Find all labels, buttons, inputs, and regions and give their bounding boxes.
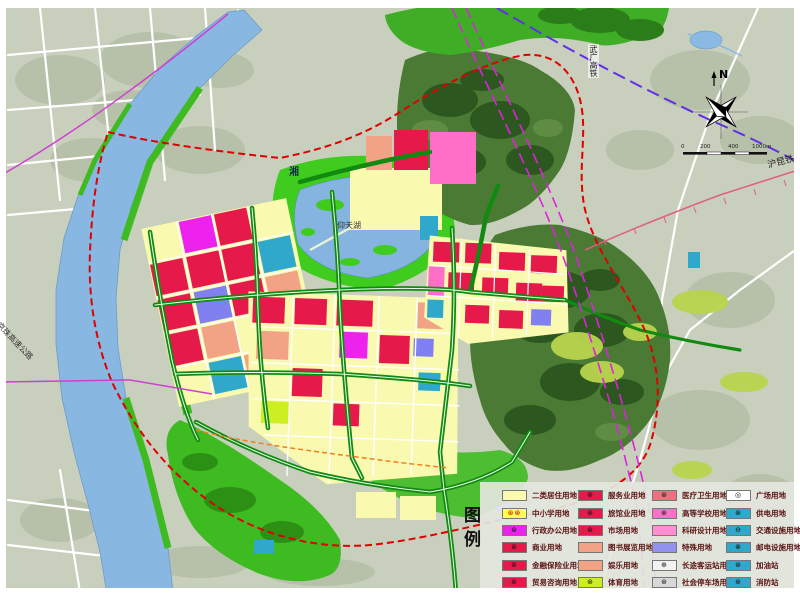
legend-item: ⊛商业用地 [502, 539, 585, 556]
legend-swatch: ⊗ [726, 542, 751, 553]
legend-item: 二类居住用地 [502, 487, 585, 504]
legend-swatch: ⊛ [578, 490, 603, 501]
legend-item-label: 金融保险业用地 [532, 560, 585, 571]
legend-column-4: ◎广场用地 ⊛供电用地 ⊖交通设施用地 ⊗邮电设施用地 ⊛加油站 ⊛消防站 [726, 487, 800, 591]
legend-item: ⊛旅馆业用地 [578, 504, 653, 521]
legend-item-label: 中小学用地 [532, 508, 570, 519]
legend-item-label: 行政办公用地 [532, 525, 577, 536]
legend-item-label: 图书展览用地 [608, 542, 653, 553]
expressway-label: 京珠高速公路 [0, 320, 35, 362]
scale-tick-0: 0 [681, 144, 685, 150]
legend-swatch [578, 560, 603, 571]
legend-item-label: 贸易咨询用地 [532, 577, 577, 588]
river-label: 湘 [289, 163, 299, 178]
legend-swatch: ⊛ [502, 542, 527, 553]
legend-swatch: ⊛ [726, 508, 751, 519]
legend-item-label: 广场用地 [756, 490, 786, 501]
legend-swatch: ⊛ [502, 525, 527, 536]
legend-item-label: 娱乐用地 [608, 560, 638, 571]
legend-item-label: 加油站 [756, 560, 779, 571]
legend-item: ⊕长途客运站用地 [652, 557, 735, 574]
legend-swatch: ◎ [726, 490, 751, 501]
legend-item-label: 医疗卫生用地 [682, 490, 727, 501]
legend-item-label: 体育用地 [608, 577, 638, 588]
legend-item: ⊛社会停车场用地 [652, 574, 735, 591]
scale-tick-1000m: 1000m [752, 144, 771, 150]
legend-swatch: ⊛ [726, 577, 751, 588]
legend-item: ⊛行政办公用地 [502, 522, 585, 539]
legend-item: 科研设计用地 [652, 522, 735, 539]
legend-item-label: 市场用地 [608, 525, 638, 536]
legend-swatch [652, 542, 677, 553]
legend-swatch: ⊛ [502, 560, 527, 571]
legend-item-label: 科研设计用地 [682, 525, 727, 536]
legend-item-label: 供电用地 [756, 508, 786, 519]
legend-column-1: 二类居住用地 ⊛⊛中小学用地 ⊛行政办公用地 ⊛商业用地 ⊛金融保险业用地 ⊛贸… [502, 487, 585, 591]
legend-title: 图例 [458, 506, 483, 554]
legend-swatch: ⊖ [726, 525, 751, 536]
legend-item: ⊛服务业用地 [578, 487, 653, 504]
legend-swatch: ⊛ [652, 490, 677, 501]
legend-item: 娱乐用地 [578, 557, 653, 574]
legend-swatch: ⊛ [502, 577, 527, 588]
legend-item-label: 特殊用地 [682, 542, 712, 553]
legend-swatch: ⊛ [652, 577, 677, 588]
legend-item: ⊗邮电设施用地 [726, 539, 800, 556]
legend-swatch: ⊛ [578, 577, 603, 588]
legend-item-label: 邮电设施用地 [756, 542, 800, 553]
railway-label: 沪昆铁路 [766, 149, 794, 170]
legend-item: ⊛贸易咨询用地 [502, 574, 585, 591]
legend-item-label: 服务业用地 [608, 490, 646, 501]
legend-item-label: 消防站 [756, 577, 779, 588]
legend-item: ◎广场用地 [726, 487, 800, 504]
legend-item: 特殊用地 [652, 539, 735, 556]
legend-swatch: ⊛ [578, 525, 603, 536]
legend-item-label: 商业用地 [532, 542, 562, 553]
legend-item-label: 二类居住用地 [532, 490, 577, 501]
legend-swatch: ⊛ [578, 508, 603, 519]
lake-label: 仰天湖 [337, 220, 361, 231]
legend-swatch [578, 542, 603, 553]
legend-swatch: ⊛ [726, 560, 751, 571]
legend-swatch: ⊛ [652, 508, 677, 519]
legend-item-label: 高等学校用地 [682, 508, 727, 519]
legend-item: ⊛医疗卫生用地 [652, 487, 735, 504]
compass-north-label: N [719, 68, 728, 81]
planning-map: 湘 仰天湖 武广高铁 京珠高速公路 沪昆铁路 N 0 200 400 1000m… [0, 0, 800, 600]
legend-swatch [502, 490, 527, 501]
legend-item: ⊛⊛中小学用地 [502, 504, 585, 521]
legend-swatch: ⊛⊛ [502, 508, 527, 519]
legend-swatch [652, 525, 677, 536]
legend-item: ⊖交通设施用地 [726, 522, 800, 539]
scale-tick-200: 200 [700, 144, 711, 150]
legend-swatch: ⊕ [652, 560, 677, 571]
legend-item: ⊛金融保险业用地 [502, 557, 585, 574]
legend-item: ⊛供电用地 [726, 504, 800, 521]
legend-item: ⊛高等学校用地 [652, 504, 735, 521]
legend-item-label: 旅馆业用地 [608, 508, 646, 519]
legend-column-2: ⊛服务业用地 ⊛旅馆业用地 ⊛市场用地 图书展览用地 娱乐用地 ⊛体育用地 [578, 487, 653, 591]
legend-item: 图书展览用地 [578, 539, 653, 556]
legend-item: ⊛消防站 [726, 574, 800, 591]
legend-item: ⊛体育用地 [578, 574, 653, 591]
legend-item: ⊛市场用地 [578, 522, 653, 539]
legend-item: ⊛加油站 [726, 557, 800, 574]
hsr-label: 武广高铁 [588, 44, 599, 78]
legend-item-label: 交通设施用地 [756, 525, 800, 536]
legend-column-3: ⊛医疗卫生用地 ⊛高等学校用地 科研设计用地 特殊用地 ⊕长途客运站用地 ⊛社会… [652, 487, 735, 591]
scale-tick-400: 400 [728, 144, 739, 150]
